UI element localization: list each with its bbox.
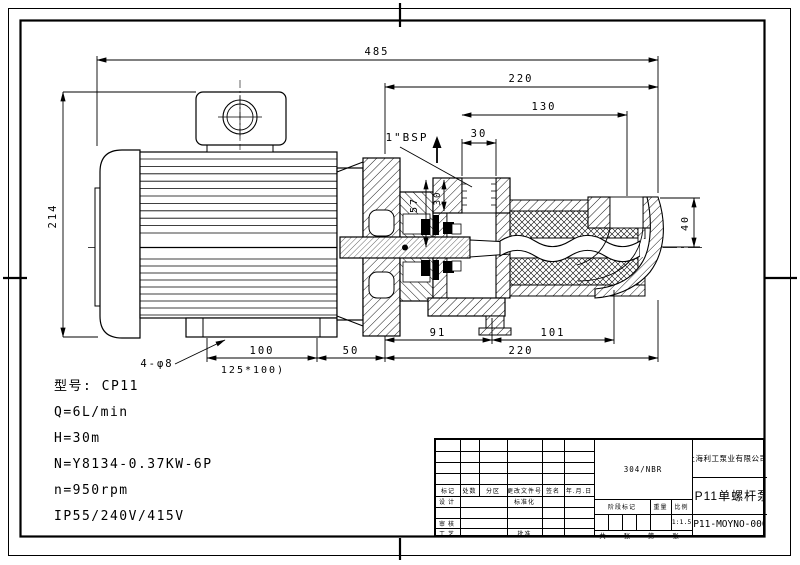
label-process: 工艺: [436, 528, 460, 539]
dim-130: 130: [532, 101, 557, 113]
spec-model: 型号: CP11: [54, 374, 284, 400]
dim-50: 50: [343, 345, 360, 357]
dim-30-top: 30: [471, 128, 488, 140]
product-title: CP11单螺杆泵: [692, 477, 763, 514]
label-mark: 标记: [436, 484, 460, 496]
bottom-flange: [428, 298, 505, 316]
pump-foot-base: [479, 328, 511, 335]
label-design: 设计: [436, 496, 460, 507]
label-count: 处数: [460, 484, 479, 496]
dim-101: 101: [541, 327, 566, 339]
label-approve: 批准: [507, 528, 542, 539]
spec-rating: IP55/240V/415V: [54, 504, 284, 530]
dim-485: 485: [365, 46, 390, 58]
motor-body: [140, 152, 337, 318]
sheet-field: 共 张 第 张: [594, 530, 692, 539]
drawing-number: CP11-MOYNO-000: [692, 514, 763, 535]
inlet-port-bore: [462, 178, 496, 213]
dim-214: 214: [47, 204, 59, 229]
outlet-wall-left: [588, 197, 610, 228]
label-stage-mark: 阶段标记: [594, 499, 650, 514]
motor: [95, 80, 363, 338]
spec-flow: Q=6L/min: [54, 400, 284, 426]
label-review: 审核: [436, 518, 460, 528]
stator-bottom: [510, 258, 638, 285]
label-standardize: 标准化: [507, 496, 542, 507]
dim-30-port: 30: [433, 191, 443, 206]
dim-100: 100: [250, 345, 275, 357]
spec-speed: n=950rpm: [54, 478, 284, 504]
label-scale: 比例: [671, 499, 692, 514]
dim-91: 91: [430, 327, 447, 339]
label-change-file: 更改文件号: [507, 484, 542, 496]
outlet-bore: [610, 197, 643, 228]
material-field: 304/NBR: [594, 440, 692, 499]
inlet-port-wall-right: [496, 178, 510, 213]
label-zone: 分区: [479, 484, 507, 496]
motor-end-cap: [100, 150, 140, 338]
shaft-center-dot: [402, 245, 408, 251]
label-bsp: 1"BSP: [385, 131, 428, 144]
scale-value: 1:1.5: [671, 514, 692, 530]
motor-baseplate: [186, 318, 337, 337]
company-name: 上海利工泵业有限公司: [692, 440, 763, 477]
label-date: 年.月.日: [564, 484, 594, 496]
dim-mount-holes: 4-φ8: [140, 358, 173, 370]
dim-220-top: 220: [509, 73, 534, 85]
spec-block: 型号: CP11 Q=6L/min H=30m N=Y8134-0.37KW-6…: [54, 374, 284, 530]
spec-head: H=30m: [54, 426, 284, 452]
label-weight: 重量: [650, 499, 671, 514]
pump-foot-stem: [486, 316, 504, 328]
dim-220-bottom: 220: [509, 345, 534, 357]
spec-motor: N=Y8134-0.37KW-6P: [54, 452, 284, 478]
drawing-sheet: 485 220 130 30 1"BSP 57 30 214 40 91 101: [0, 0, 800, 565]
dim-40: 40: [680, 215, 691, 231]
label-signature: 签名: [542, 484, 564, 496]
dim-57: 57: [409, 197, 420, 213]
title-block: 标记 处数 分区 更改文件号 签名 年.月.日 设计 标准化 审核 工艺 批准 …: [434, 438, 765, 537]
